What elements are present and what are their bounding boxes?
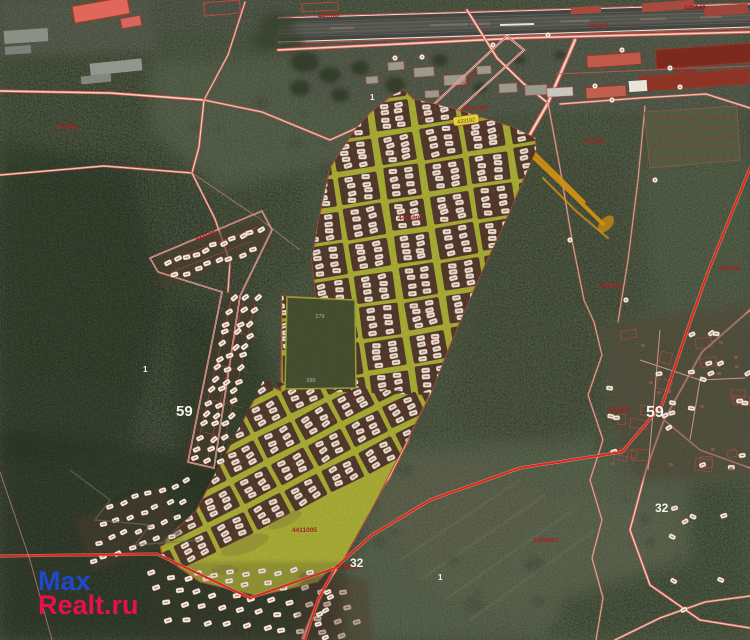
svg-text:441126: 441126 — [718, 265, 740, 272]
svg-text:441451: 441451 — [600, 283, 622, 290]
svg-text:1: 1 — [438, 573, 443, 582]
svg-text:440346: 440346 — [684, 4, 706, 12]
svg-text:440398: 440398 — [56, 124, 78, 131]
svg-text:59: 59 — [646, 404, 664, 421]
svg-text:59: 59 — [176, 403, 193, 420]
svg-text:1: 1 — [143, 365, 148, 374]
svg-text:1: 1 — [370, 93, 375, 102]
svg-text:Realt.ru: Realt.ru — [38, 590, 139, 620]
svg-text:4411009: 4411009 — [462, 105, 487, 112]
svg-text:32: 32 — [350, 556, 364, 570]
svg-text:441103: 441103 — [674, 68, 696, 75]
svg-text:32: 32 — [655, 501, 669, 515]
svg-text:441141: 441141 — [588, 22, 610, 30]
svg-text:441161: 441161 — [583, 138, 605, 145]
svg-text:3448301: 3448301 — [533, 537, 559, 544]
svg-text:441461: 441461 — [608, 407, 630, 414]
svg-text:440302: 440302 — [318, 12, 340, 20]
